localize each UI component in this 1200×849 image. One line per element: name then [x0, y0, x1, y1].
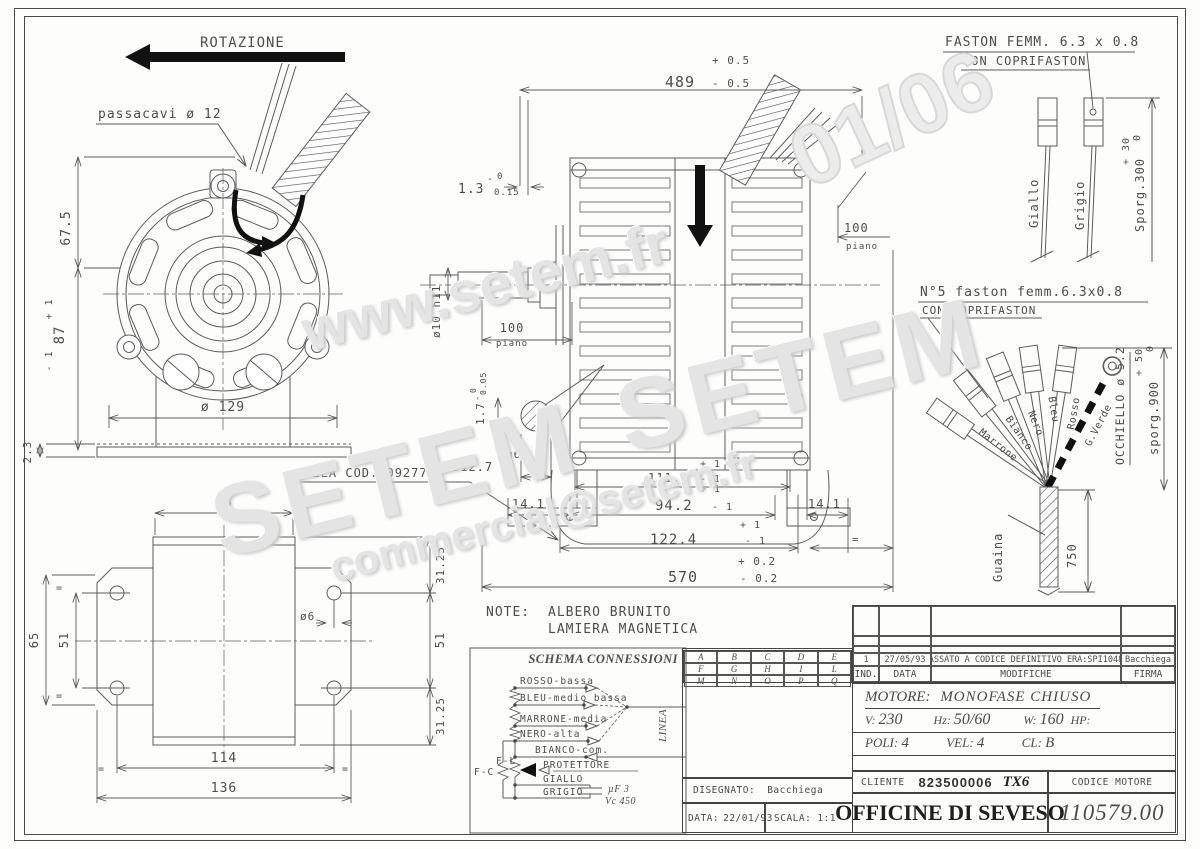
dim-942: 94.2 [655, 498, 693, 514]
dim-1112: 111.2 [648, 471, 689, 485]
rev-date: 27/05/93 [879, 653, 931, 666]
dim-3125-top: 31.25 [434, 546, 447, 584]
dim-570-tm: - 0.2 [740, 572, 778, 585]
hz-value: 50/60 [954, 711, 990, 728]
codice-label-cell: CODICE MOTORE [1048, 771, 1176, 793]
sporg-300: Sporg.300 [1133, 158, 1147, 232]
dim-141-r: 14.1 [808, 497, 841, 511]
bottom-view-dims: 75 65 51 = = 31.25 51 31.25 ø6 [27, 496, 447, 803]
faston2-title: N°5 faston femm.6.3x0.8 [920, 285, 1123, 300]
drawing-sheet: ROTAZIONE [0, 0, 1200, 849]
eq-3: = [98, 764, 105, 775]
poli-label: POLI: [865, 735, 898, 750]
grid-o: O [751, 675, 784, 687]
schema-linea: LINEA [657, 709, 669, 743]
motore-label: MOTORE: [865, 689, 931, 705]
cl-label: CL: [1022, 735, 1042, 750]
dim-489-tp: + 0.5 [712, 54, 750, 67]
schema-fl: F-L [496, 756, 516, 767]
schema-diagram: SCHEMA CONNESSIONI ROSSO-bassa BLEU-medi… [470, 648, 686, 833]
disegnato-value: Bacchiega [767, 785, 823, 796]
grid-d: D [784, 651, 817, 663]
grid-q: Q [818, 675, 851, 687]
grid-i: I [784, 663, 817, 675]
sporg-300-tp: + 30 [1121, 137, 1132, 165]
passacavi-label: passacavi ø 12 [98, 107, 222, 122]
piano-r: piano [846, 242, 878, 252]
schema-title: SCHEMA CONNESSIONI [528, 652, 678, 666]
codice-cell: 110579.00 [1048, 793, 1176, 833]
v-label: V: [865, 713, 876, 727]
base-plate [97, 447, 351, 457]
shaft-dia: ø10 h11 [430, 285, 443, 338]
disegnato-cell: DISEGNATO: Bacchiega [682, 778, 853, 803]
dim-136: 136 [211, 781, 237, 796]
schema-cap1: µF 3 [608, 784, 629, 795]
schema-protettore: PROTETTORE [543, 760, 610, 771]
letter-grid: ABCDE FGHIL MNOPQ [683, 650, 852, 683]
dim-2-3: 2.3 [21, 441, 34, 464]
guaina-sheath [1040, 487, 1058, 587]
schema-bianco: BIANCO-com. [535, 745, 609, 756]
note-line1: ALBERO BRUNITO [548, 605, 672, 620]
data-label: DATA: [688, 813, 719, 824]
grid-p: P [784, 675, 817, 687]
grid-f: F [684, 663, 717, 675]
motor-data-block: MOTORE: MONOFASE CHIUSO V: 230 Hz: 50/60… [852, 683, 1176, 771]
culla-label: CULLA COD.30927702 [296, 466, 444, 480]
grid-g: G [717, 663, 750, 675]
rev-mod: PASSATO A CODICE DEFINITIVO ERA:SPI10485 [931, 653, 1121, 666]
rev-h-data: DATA [879, 666, 931, 682]
revision-table: 1 27/05/93 PASSATO A CODICE DEFINITIVO E… [852, 605, 1176, 683]
scala-value: 1:1 [817, 813, 836, 824]
dim-1-7-tol-b: 0.05 [479, 372, 488, 395]
codice-motore-value: 110579.00 [1059, 800, 1164, 826]
schema-bleu: BLEU-medio bassa [520, 693, 628, 704]
w-label: W: [1023, 713, 1036, 727]
sporg-300-t0: 0 [1132, 134, 1143, 141]
eq-side: = [852, 533, 860, 546]
dim-570: 570 [668, 568, 698, 586]
cl-value: B [1045, 735, 1054, 751]
cliente-label: CLIENTE [861, 777, 905, 788]
dim-1-7-tol-t: 0 [469, 387, 478, 393]
dim-1-3-tt: 0 [497, 172, 503, 182]
eq-1: = [56, 583, 63, 594]
dim-87-tol-p: + 1 [44, 298, 55, 319]
grid-b: B [717, 651, 750, 663]
schema-fc: F-C [474, 767, 494, 778]
codice-motore-label: CODICE MOTORE [1072, 777, 1153, 788]
dim-1112-tp: + 1 [700, 459, 721, 470]
dim-489: 489 [665, 73, 695, 91]
sporg-900-tp: + 50 [1134, 348, 1145, 376]
dim-100-l: 100 [500, 321, 525, 335]
rev-ind: 1 [853, 653, 879, 666]
grid-m: M [684, 675, 717, 687]
schema-giallo: GIALLO [543, 774, 583, 785]
dim-65: 65 [27, 632, 41, 648]
rev-h-firma: FIRMA [1121, 666, 1175, 682]
grid-n: N [717, 675, 750, 687]
grid-a: A [684, 651, 717, 663]
dim-750: 750 [1065, 543, 1079, 568]
schema-marrone: MARRONE-media [520, 714, 607, 725]
dim-1-7: 1.7 [474, 402, 487, 425]
piano-l: piano [496, 339, 528, 349]
faston2-sub: CON COPRIFASTON [922, 304, 1036, 317]
hp-label: HP: [1071, 713, 1091, 727]
faston-detail-2: N°5 faston femm.6.3x0.8 CON COPRIFASTON [918, 285, 1172, 595]
motore-value: MONOFASE CHIUSO [940, 689, 1091, 705]
sporg-900: sporg.900 [1147, 381, 1161, 455]
dim-3125-bot: 31.25 [434, 697, 447, 735]
data-cell: DATA: 22/01/93 [682, 803, 765, 833]
dim-129: ø 129 [201, 400, 245, 415]
rev-h-mod: MODIFICHE [931, 666, 1121, 682]
down-arrow [687, 165, 713, 247]
cliente-tx: TX6 [1003, 774, 1030, 791]
dim-100-r: 100 [844, 221, 869, 235]
schema-rosso: ROSSO-bassa [520, 676, 594, 687]
dim-51-right: 51 [433, 632, 447, 648]
cliente-cell: CLIENTE 823500006 TX6 [852, 771, 1048, 793]
scala-label: SCALA: [774, 813, 811, 824]
grid-l: L [818, 663, 851, 675]
dim-75: 75 [215, 496, 233, 511]
front-view: ROTAZIONE [21, 35, 370, 463]
dim-570-tp: + 0.2 [738, 555, 776, 568]
note-line2: LAMIERA MAGNETICA [548, 622, 698, 637]
dim-942-tm: - 1 [712, 502, 733, 513]
dim-942-tp: + 1 [700, 484, 721, 495]
shaft-section-detail [521, 401, 551, 431]
grid-h: H [751, 663, 784, 675]
schema-grigio: GRIGIO [543, 787, 583, 798]
dim-1224-tm: - 1 [745, 536, 766, 547]
dim-87: 87 [52, 326, 68, 345]
vel-value: 4 [977, 735, 985, 751]
scala-cell: SCALA: 1:1 [765, 803, 853, 833]
occhiello-label: OCCHIELLO ø 5.2 [1113, 346, 1127, 465]
dim-1-3: 1.3 [458, 182, 484, 197]
cliente-code: 823500006 [919, 775, 993, 790]
dim-1-3-tb: 0.15 [494, 188, 520, 198]
w-value: 160 [1040, 711, 1064, 728]
wire-grigio: Grigio [1073, 181, 1087, 230]
guaina-label: Guaina [991, 533, 1005, 582]
fins [580, 178, 802, 452]
wire-giallo: Giallo [1027, 179, 1041, 228]
dim-1224-tp: + 1 [740, 520, 761, 531]
cables [250, 63, 370, 207]
detail-dia: ø12.7 [452, 460, 493, 474]
rev-firma: Bacchiega [1121, 653, 1175, 666]
dim-489-tm: - 0.5 [712, 77, 750, 90]
schema-cap2: Vc 450 [605, 796, 636, 807]
note-label: NOTE: [486, 605, 530, 620]
dim-114: 114 [211, 751, 237, 766]
fit-label: g6 [506, 448, 521, 461]
disegnato-label: DISEGNATO: [693, 785, 755, 796]
company-cell: OFFICINE DI SEVESO [852, 793, 1048, 833]
dim-1-3-sign: - [487, 174, 494, 185]
grid-e: E [818, 651, 851, 663]
hole-dia: ø6 [300, 610, 315, 623]
bottom-view: 75 65 51 = = 31.25 51 31.25 ø6 [27, 496, 447, 803]
dim-67-5: 67.5 [59, 210, 74, 245]
vel-label: VEL: [946, 735, 973, 750]
v-value: 230 [879, 711, 903, 728]
rotation-label: ROTAZIONE [200, 35, 285, 51]
dim-87-tol-m: - 1 [44, 350, 55, 371]
dim-1224: 122.4 [650, 532, 697, 548]
grid-c: C [751, 651, 784, 663]
dim-141-l: 14.1 [512, 497, 545, 511]
eq-2: = [56, 691, 63, 702]
company-name: OFFICINE DI SEVESO [835, 800, 1065, 826]
eq-4: = [342, 764, 349, 775]
rev-h-ind: IND. [853, 666, 879, 682]
hz-label: Hz: [934, 713, 951, 727]
dim-51-left: 51 [57, 632, 71, 648]
poli-value: 4 [901, 735, 909, 751]
schema-nero: NERO-alta [520, 729, 580, 740]
